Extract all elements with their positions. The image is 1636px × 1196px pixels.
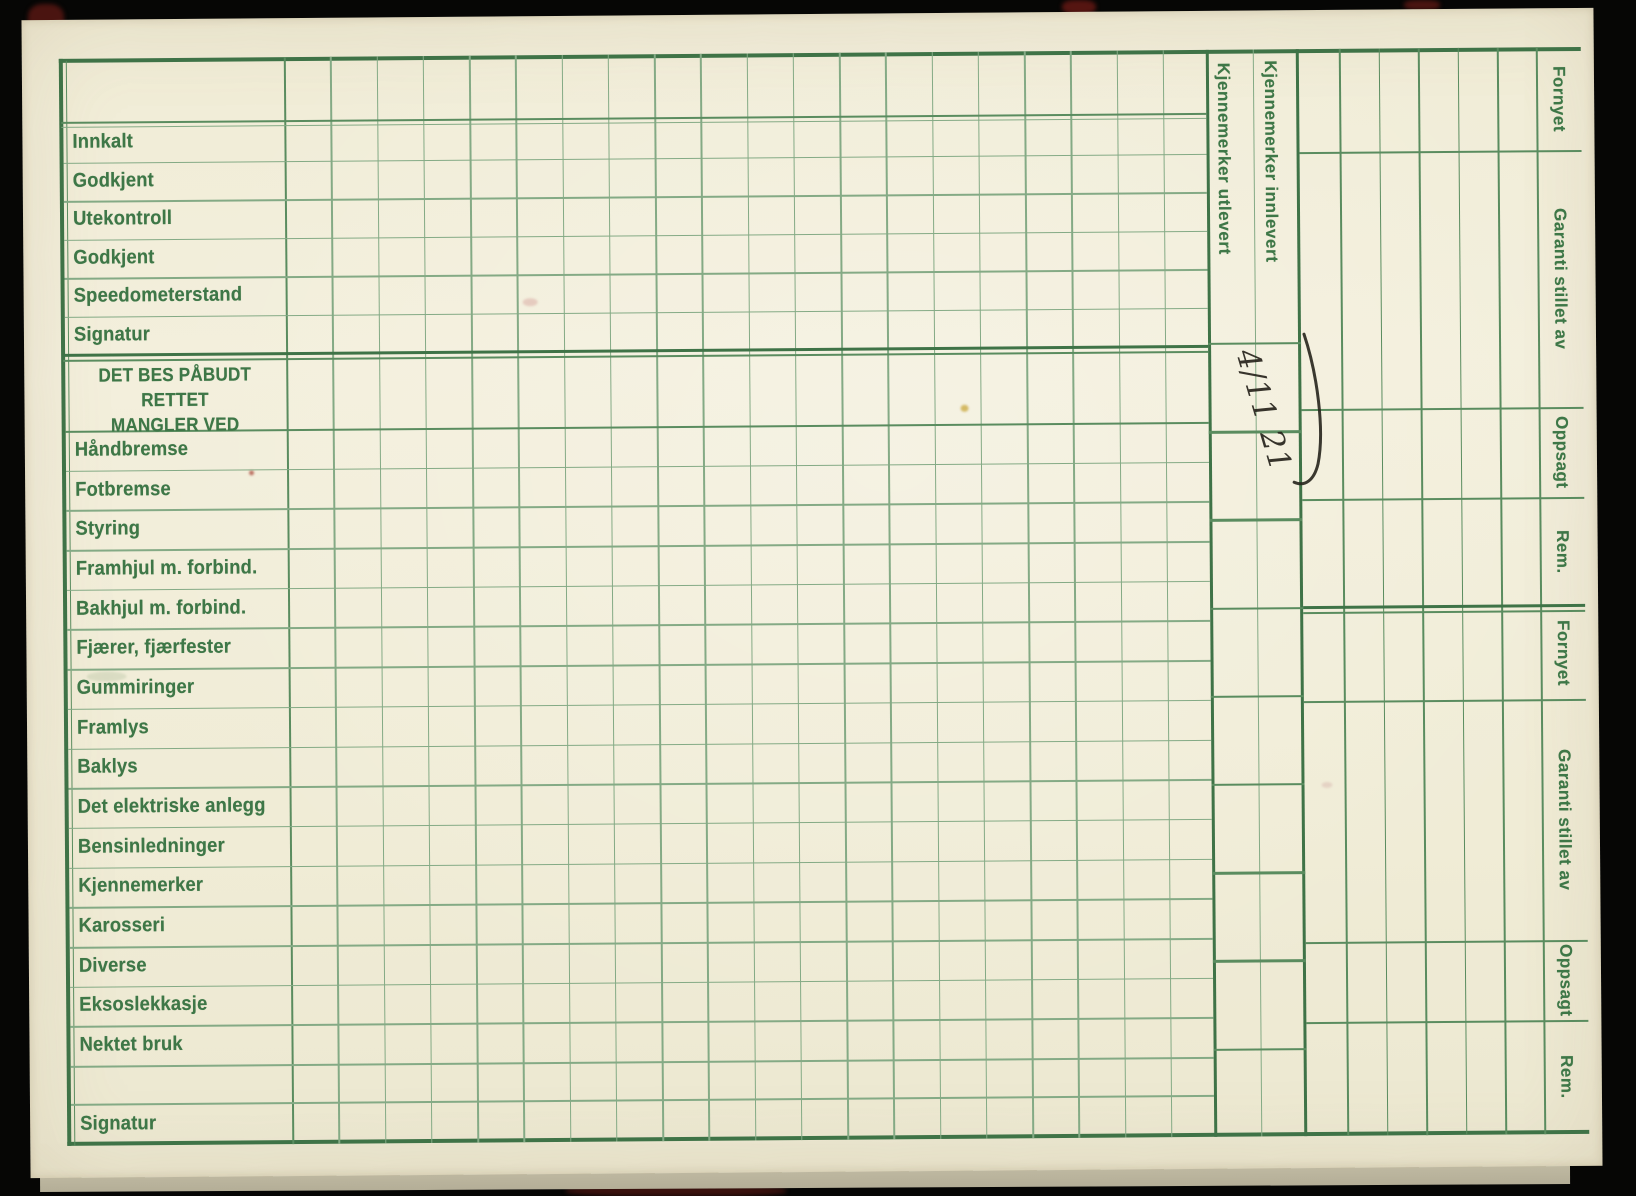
grid-line — [1116, 51, 1126, 1138]
stain — [961, 405, 969, 412]
status-row-label: Signatur — [74, 323, 150, 347]
grid-line — [64, 230, 1207, 240]
grid-line — [1418, 48, 1428, 1135]
defect-row-label: Bensinledninger — [78, 834, 225, 858]
defect-row-label: Framlys — [77, 716, 149, 740]
grid-line — [59, 47, 1581, 63]
grid-line — [69, 858, 1212, 869]
right-vertical-label: Garanti stillet av — [1549, 208, 1570, 349]
grid-line — [69, 819, 1212, 830]
grid-line — [1378, 49, 1388, 1136]
right-label-block: Rem. — [1543, 1020, 1589, 1134]
grid-line — [69, 898, 1212, 909]
defect-row-label: Fotbremse — [75, 478, 171, 502]
defect-row-label: Bakhjul m. forbind. — [76, 596, 246, 620]
grid-line — [793, 53, 803, 1140]
stain — [523, 298, 538, 306]
grid-line — [1339, 49, 1349, 1136]
grid-line — [68, 739, 1211, 750]
status-row-label: Godkjent — [73, 246, 154, 270]
grid-line — [1212, 783, 1305, 786]
grid-line — [64, 192, 1207, 202]
grid-line — [1162, 50, 1172, 1137]
grid-line — [376, 56, 386, 1143]
defects-header-line2: MANGLER VED — [77, 412, 274, 439]
grid-line — [1296, 49, 1308, 1136]
defect-row-label: Baklys — [77, 756, 138, 779]
grid-line — [67, 541, 1210, 552]
right-vertical-label: Oppsagt — [1551, 416, 1572, 489]
grid-line — [1210, 607, 1303, 610]
grid-line — [885, 52, 895, 1139]
row-labels: InnkaltGodkjentUtekontrollGodkjentSpeedo… — [21, 8, 1593, 20]
grid-line — [64, 153, 1207, 163]
right-vertical-label: Garanti stillet av — [1554, 749, 1575, 890]
right-vertical-label: Rem. — [1556, 1055, 1576, 1099]
grid-line — [1211, 695, 1304, 698]
grid-line — [67, 581, 1210, 592]
grid-line — [1214, 1048, 1307, 1051]
grid-line — [423, 56, 433, 1143]
right-vertical-label: Rem. — [1552, 530, 1572, 574]
stain — [249, 470, 254, 475]
right-label-block: Fornyet — [1536, 47, 1582, 150]
defect-row-label: Styring — [75, 517, 140, 541]
grid-line — [1497, 48, 1507, 1135]
grid-line — [1208, 342, 1301, 345]
grid-line — [469, 56, 479, 1143]
status-row-label: Speedometerstand — [74, 284, 243, 308]
defects-header-line1: DET BES PÅBUDT RETTET — [76, 362, 273, 414]
grid-line — [67, 620, 1210, 631]
grid-line — [700, 54, 710, 1141]
grid-line — [68, 700, 1211, 711]
right-label-block: Garanti stillet av — [1537, 150, 1584, 407]
grid-line — [330, 57, 340, 1144]
grid-line — [71, 1057, 1214, 1068]
defect-row-label: Det elektriske anlegg — [78, 794, 266, 818]
grid-line — [70, 977, 1213, 988]
status-row-label: Utekontroll — [73, 207, 172, 231]
grid-line — [284, 57, 294, 1144]
inspection-card: DET BES PÅBUDT RETTET MANGLER VED Kjenne… — [21, 8, 1602, 1178]
grid-line — [839, 53, 849, 1140]
right-label-block: Fornyet — [1540, 606, 1586, 699]
grid-line — [561, 55, 571, 1142]
grid-line — [1212, 871, 1305, 874]
grid-line — [931, 52, 941, 1139]
status-row-label: Innkalt — [72, 131, 133, 154]
defects-header: DET BES PÅBUDT RETTET MANGLER VED — [76, 362, 274, 428]
grid-line — [68, 660, 1211, 671]
grid-line — [69, 779, 1212, 790]
grid-line — [65, 307, 1208, 317]
defect-row-label: Framhjul m. forbind. — [76, 556, 258, 580]
grid-line — [515, 55, 525, 1142]
defect-row-label: Eksoslekkasje — [79, 993, 207, 1017]
grid-line — [746, 53, 756, 1140]
grid-line — [978, 52, 988, 1139]
right-vertical-label: Oppsagt — [1555, 944, 1576, 1017]
grid-line — [608, 55, 618, 1142]
grid-line — [654, 54, 664, 1141]
stain — [1322, 782, 1333, 788]
grid-line — [67, 1130, 1589, 1146]
defect-row-label: Kjennemerker — [78, 874, 203, 898]
right-vertical-labels: FornyetGaranti stillet avOppsagtRem.Forn… — [21, 8, 1593, 20]
right-label-block: Garanti stillet av — [1541, 699, 1588, 940]
grid-line — [1209, 430, 1302, 433]
plate-returned-column-label: Kjennemerker innlevert — [1260, 60, 1282, 262]
defect-row-label: Diverse — [79, 954, 147, 978]
grid-line — [1209, 519, 1302, 522]
defect-row-label: Gummiringer — [77, 676, 195, 700]
right-vertical-label: Fornyet — [1553, 620, 1574, 686]
grid-line — [70, 938, 1213, 949]
card-table: DET BES PÅBUDT RETTET MANGLER VED Kjenne… — [21, 8, 1602, 1178]
grid-line — [1213, 960, 1306, 963]
right-vertical-label: Fornyet — [1548, 66, 1569, 132]
status-row-label: Godkjent — [73, 169, 154, 193]
grid-line — [1070, 51, 1080, 1138]
defect-row-label: Karosseri — [79, 914, 166, 938]
handwriting-text: 4/11 21 — [1228, 344, 1298, 476]
signature-row-label: Signatur — [80, 1112, 156, 1136]
grid-line — [1024, 51, 1034, 1138]
defect-row-label: Håndbremse — [75, 438, 188, 462]
right-label-block: Oppsagt — [1543, 940, 1589, 1020]
grid-line — [71, 1095, 1214, 1106]
scanned-card-background: DET BES PÅBUDT RETTET MANGLER VED Kjenne… — [0, 0, 1636, 1196]
grid-line — [66, 462, 1209, 473]
grid-line — [70, 1017, 1213, 1028]
grid-line — [65, 269, 1208, 279]
right-label-block: Rem. — [1539, 497, 1585, 606]
grid-line — [1457, 48, 1467, 1135]
right-label-block: Oppsagt — [1539, 407, 1585, 497]
grid-line — [66, 501, 1209, 512]
defect-row-label: Fjærer, fjærfester — [76, 636, 231, 660]
defect-row-label: Nektet bruk — [79, 1033, 182, 1057]
plate-issued-column-label: Kjennemerker utlevert — [1213, 63, 1235, 255]
